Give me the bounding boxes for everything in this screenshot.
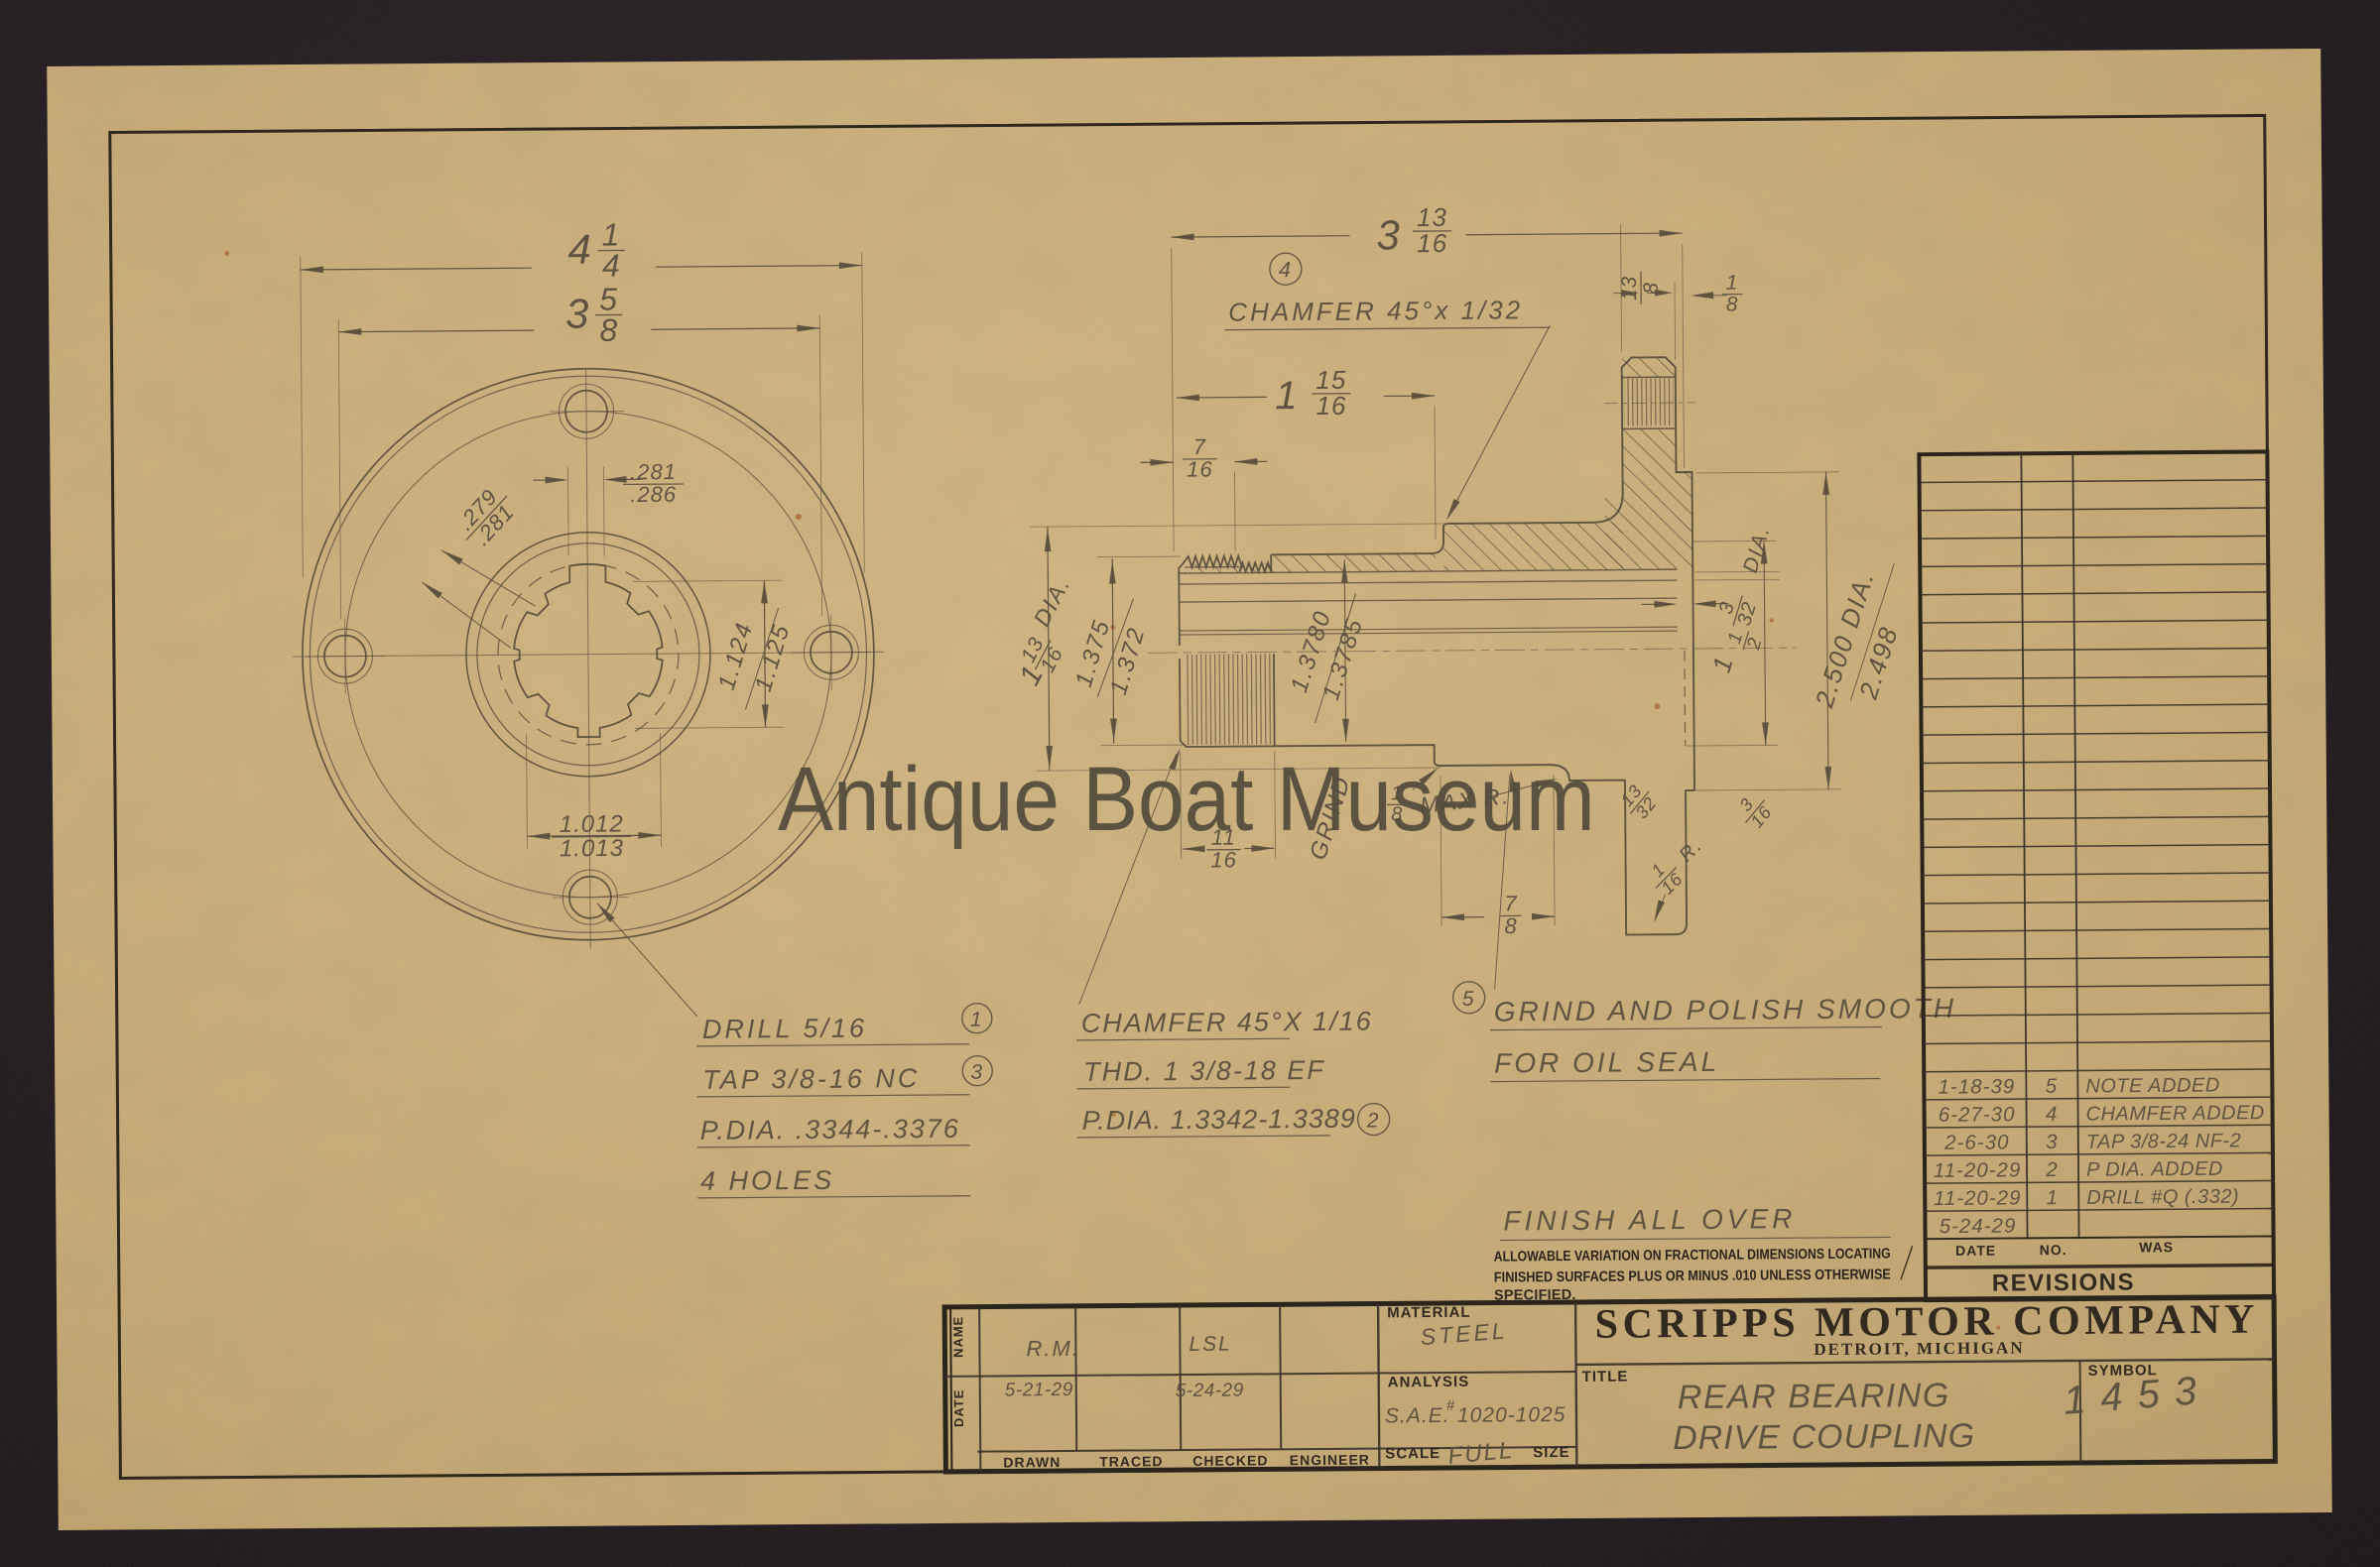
- svg-text:DRILL 5/16: DRILL 5/16: [702, 1014, 867, 1044]
- svg-text:4: 4: [602, 248, 621, 284]
- svg-text:.281: .281: [630, 459, 677, 484]
- svg-text:NO.: NO.: [2040, 1242, 2067, 1258]
- svg-text:P.DIA. 1.3342-1.3389: P.DIA. 1.3342-1.3389: [1082, 1104, 1356, 1136]
- svg-text:4: 4: [2046, 1103, 2060, 1126]
- svg-text:3: 3: [1376, 211, 1401, 258]
- svg-text:TAP 3/8-16 NC: TAP 3/8-16 NC: [702, 1063, 920, 1095]
- svg-text:S.A.E.: S.A.E.: [1385, 1404, 1450, 1428]
- svg-text:MATERIAL: MATERIAL: [1387, 1304, 1471, 1322]
- svg-text:P.DIA. .3344-.3376: P.DIA. .3344-.3376: [700, 1114, 960, 1145]
- svg-text:SCALE: SCALE: [1385, 1445, 1441, 1462]
- svg-text:16: 16: [1210, 847, 1237, 872]
- svg-text:DETROIT, MICHIGAN: DETROIT, MICHIGAN: [1814, 1338, 2024, 1359]
- svg-text:1.013: 1.013: [560, 835, 624, 863]
- svg-text:FINISH ALL OVER: FINISH ALL OVER: [1503, 1203, 1796, 1236]
- svg-text:WAS: WAS: [2139, 1239, 2174, 1255]
- svg-text:DRAWN: DRAWN: [1003, 1454, 1061, 1470]
- svg-text:THD. 1 3/8-18 EF: THD. 1 3/8-18 EF: [1083, 1055, 1325, 1087]
- svg-text:2: 2: [2045, 1158, 2060, 1181]
- svg-text:SIZE: SIZE: [1533, 1444, 1569, 1461]
- svg-text:LSL: LSL: [1189, 1333, 1232, 1356]
- svg-text:16: 16: [1187, 456, 1213, 481]
- svg-text:5-24-29: 5-24-29: [1940, 1215, 2017, 1239]
- svg-text:1: 1: [1275, 374, 1299, 418]
- svg-text:FOR OIL SEAL: FOR OIL SEAL: [1494, 1046, 1719, 1079]
- svg-text:REAR BEARING: REAR BEARING: [1678, 1377, 1950, 1416]
- svg-text:3: 3: [565, 291, 590, 337]
- svg-text:1: 1: [1726, 272, 1739, 295]
- svg-text:8: 8: [1504, 913, 1517, 938]
- svg-text:8: 8: [1640, 282, 1663, 295]
- svg-text:8: 8: [599, 312, 618, 348]
- svg-text:TRACED: TRACED: [1099, 1453, 1163, 1470]
- svg-text:4: 4: [1279, 257, 1293, 282]
- svg-text:2: 2: [1366, 1109, 1381, 1132]
- svg-text:CHAMFER 45°X 1/16: CHAMFER 45°X 1/16: [1081, 1007, 1373, 1038]
- svg-text:4: 4: [567, 226, 592, 273]
- svg-text:1020-1025: 1020-1025: [1457, 1403, 1566, 1427]
- svg-text:DATE: DATE: [1955, 1243, 1996, 1259]
- svg-text:ENGINEER: ENGINEER: [1290, 1452, 1370, 1469]
- svg-text:DRILL #Q (.332): DRILL #Q (.332): [2086, 1186, 2239, 1209]
- svg-text:1: 1: [2046, 1186, 2060, 1209]
- svg-text:13: 13: [1618, 276, 1641, 301]
- svg-text:2-6-30: 2-6-30: [1943, 1131, 2009, 1154]
- svg-text:5-24-29: 5-24-29: [1176, 1381, 1244, 1402]
- svg-text:DRIVE COUPLING: DRIVE COUPLING: [1673, 1417, 1975, 1457]
- svg-text:1-18-39: 1-18-39: [1938, 1075, 2015, 1099]
- svg-text:6-27-30: 6-27-30: [1939, 1103, 2016, 1127]
- svg-text:16: 16: [1315, 391, 1346, 421]
- svg-text:5-21-29: 5-21-29: [1005, 1380, 1073, 1401]
- svg-text:.286: .286: [630, 482, 677, 507]
- svg-text:GRIND AND POLISH SMOOTH: GRIND AND POLISH SMOOTH: [1494, 993, 1956, 1027]
- svg-text:#: #: [1446, 1397, 1455, 1414]
- svg-text:7: 7: [1193, 434, 1206, 459]
- svg-text:REVISIONS: REVISIONS: [1992, 1269, 2135, 1297]
- svg-text:DATE: DATE: [951, 1389, 966, 1428]
- svg-text:3: 3: [2046, 1131, 2060, 1153]
- svg-text:8: 8: [1726, 294, 1739, 316]
- svg-text:CHECKED: CHECKED: [1192, 1452, 1268, 1469]
- svg-text:11-20-29: 11-20-29: [1934, 1186, 2022, 1210]
- svg-text:5: 5: [2046, 1075, 2060, 1098]
- svg-text:R.M.: R.M.: [1026, 1336, 1080, 1361]
- svg-text:1: 1: [970, 1009, 984, 1031]
- svg-text:FINISHED SURFACES PLUS OR: FINISHED SURFACES PLUS OR MINUS .010 UNL…: [1494, 1266, 1891, 1285]
- svg-text:CHAMFER ADDED: CHAMFER ADDED: [2086, 1102, 2265, 1125]
- svg-text:16: 16: [1417, 228, 1447, 258]
- svg-text:3: 3: [970, 1061, 984, 1084]
- svg-text:1.012: 1.012: [560, 810, 624, 838]
- svg-text:11-20-29: 11-20-29: [1934, 1158, 2022, 1182]
- svg-text:NAME: NAME: [950, 1316, 965, 1358]
- svg-text:TITLE: TITLE: [1582, 1369, 1629, 1386]
- svg-text:CHAMFER 45°x 1/32: CHAMFER 45°x 1/32: [1228, 295, 1523, 326]
- svg-text:P DIA. ADDED: P DIA. ADDED: [2086, 1158, 2223, 1181]
- svg-text:ANALYSIS: ANALYSIS: [1388, 1374, 1470, 1391]
- svg-text:NOTE ADDED: NOTE ADDED: [2085, 1074, 2220, 1097]
- svg-text:5: 5: [1462, 988, 1476, 1011]
- svg-text:4 HOLES: 4 HOLES: [700, 1165, 834, 1196]
- svg-text:ALLOWABLE VARIATION ON FRAC: ALLOWABLE VARIATION ON FRACTIONAL DIMENS…: [1494, 1246, 1891, 1265]
- svg-text:TAP 3/8-24 NF-2: TAP 3/8-24 NF-2: [2086, 1130, 2242, 1152]
- svg-text:7: 7: [1504, 891, 1517, 915]
